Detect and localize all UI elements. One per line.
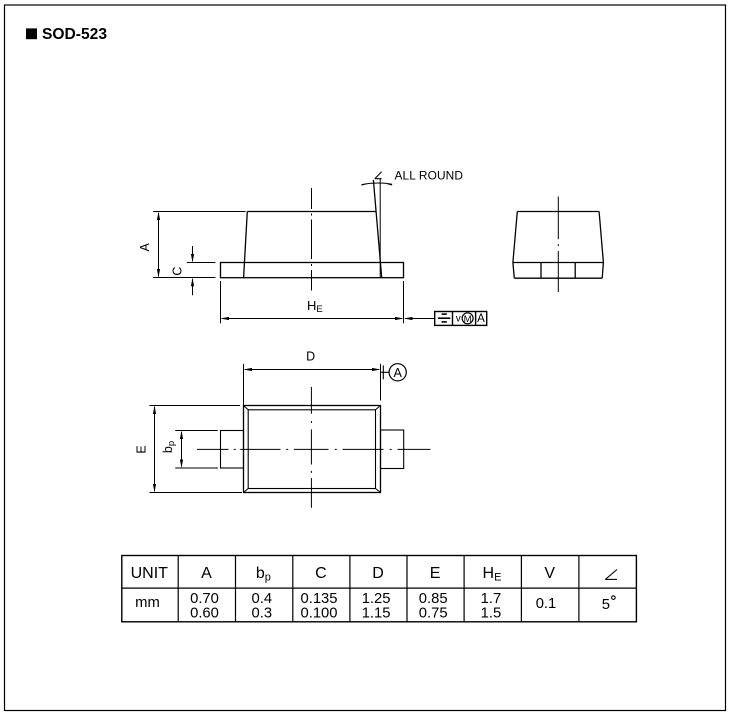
svg-text:0.3: 0.3 [252, 605, 273, 621]
svg-text:D: D [306, 349, 315, 363]
svg-text:E: E [430, 565, 441, 582]
svg-text:V: V [544, 565, 555, 582]
svg-text:ALL ROUND: ALL ROUND [395, 169, 464, 183]
svg-text:0.1: 0.1 [536, 596, 557, 612]
svg-text:0.60: 0.60 [190, 605, 219, 621]
svg-text:0.100: 0.100 [300, 605, 337, 621]
svg-text:A: A [201, 565, 212, 582]
svg-text:v: v [456, 314, 461, 325]
svg-text:D: D [372, 565, 384, 582]
svg-text:0.75: 0.75 [419, 605, 448, 621]
svg-text:SOD-523: SOD-523 [42, 26, 107, 43]
svg-text:5: 5 [602, 597, 610, 613]
svg-text:A: A [394, 366, 403, 380]
svg-text:A: A [477, 313, 485, 325]
svg-text:UNIT: UNIT [131, 565, 169, 582]
svg-text:C: C [170, 267, 184, 276]
svg-text:M: M [464, 314, 472, 325]
svg-text:mm: mm [135, 595, 160, 611]
svg-text:A: A [138, 242, 152, 251]
svg-text:1.15: 1.15 [362, 605, 391, 621]
svg-text:E: E [135, 445, 149, 453]
svg-text:1.5: 1.5 [481, 605, 502, 621]
svg-text:C: C [315, 565, 327, 582]
